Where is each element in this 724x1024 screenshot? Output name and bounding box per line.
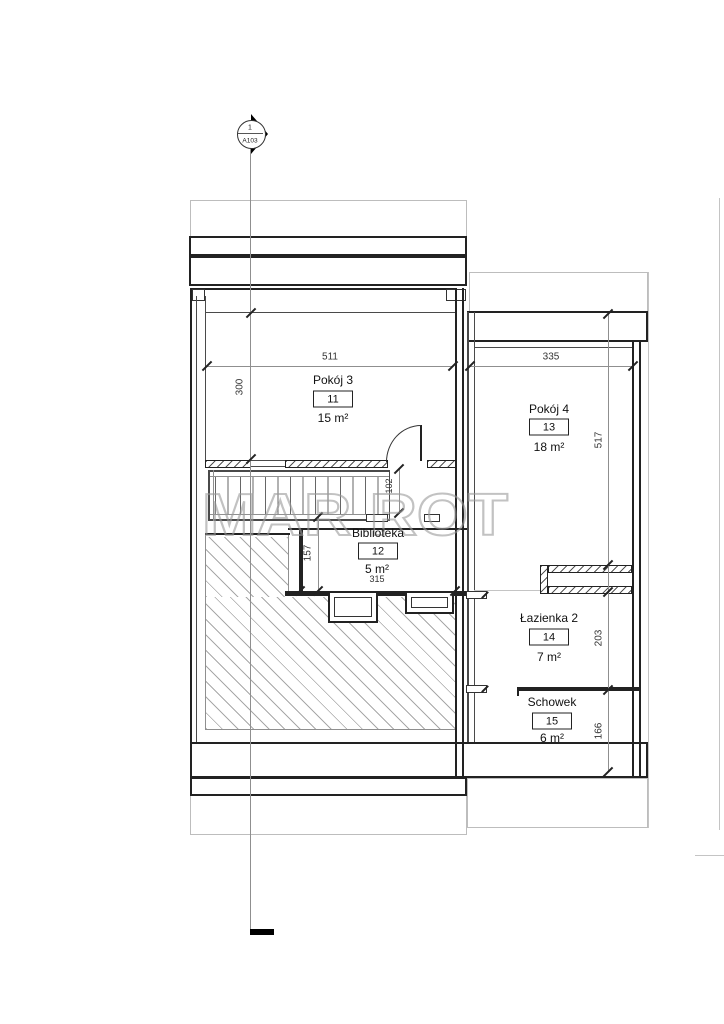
- room-name-lazienka2: Łazienka 2: [520, 611, 578, 625]
- underlay-bottom-edge: [695, 855, 724, 856]
- biblioteka-bottom-wall-1: [285, 591, 328, 596]
- dim-tick: [246, 454, 257, 465]
- roof-band-top-1: [189, 236, 467, 256]
- dim-label-300: 300: [235, 379, 246, 396]
- underlay-top-wing: [469, 272, 648, 312]
- corridor-opening-bottom: [251, 466, 285, 467]
- wall-left-face-upper: [205, 296, 206, 463]
- pillar-top-left: [192, 289, 205, 301]
- underlay-bottom-main: [190, 795, 467, 835]
- roof-band-bottom-1: [190, 742, 648, 778]
- schowek-divider-wall: [517, 687, 639, 691]
- corridor-opening-top: [251, 460, 285, 461]
- dim-label-517: 517: [594, 432, 605, 449]
- room-number-pokoj4: 13: [529, 419, 569, 436]
- room-name-schowek: Schowek: [528, 695, 577, 709]
- section-sheet-number: A103: [242, 138, 257, 145]
- dim-label-511: 511: [322, 352, 338, 363]
- underlay-top-main: [190, 200, 467, 237]
- dim-line-right-vertical: [608, 314, 609, 772]
- wall-left-face-lower: [205, 535, 206, 730]
- roof-band-wing: [467, 311, 648, 342]
- knee-wall-line-pokoj3: [205, 312, 455, 313]
- duct-wall-cap: [540, 565, 548, 594]
- chimney-block-1-inner: [334, 597, 372, 617]
- underlay-right-edge: [719, 198, 720, 830]
- room-name-pokoj3: Pokój 3: [313, 373, 353, 387]
- section-detail-number: 1: [248, 125, 252, 132]
- wing-wall-right-a: [632, 342, 634, 778]
- corridor-wall-seg-3: [427, 460, 456, 468]
- room-number-schowek: 15: [532, 713, 572, 730]
- corridor-wall-seg-1: [205, 460, 251, 468]
- section-marker-divider: [238, 133, 263, 134]
- dim-label-203: 203: [594, 630, 605, 647]
- dim-tick: [246, 308, 257, 319]
- duct-wall-band-2: [548, 586, 632, 594]
- room-number-pokoj3: 11: [313, 391, 353, 408]
- room-number-biblioteka: 12: [358, 543, 398, 560]
- door-swing-arc: [386, 425, 421, 462]
- wing-edge-gray: [648, 272, 649, 828]
- room-area-lazienka2: 7 m²: [537, 650, 561, 664]
- dim-label-335: 335: [543, 352, 560, 363]
- chimney-block-2: [405, 591, 454, 614]
- room-number-lazienka2: 14: [529, 629, 569, 646]
- roof-band-bottom-2: [190, 777, 467, 796]
- room-area-pokoj4: 18 m²: [534, 440, 565, 454]
- room-area-pokoj3: 15 m²: [318, 411, 349, 425]
- schowek-divider-cap: [517, 687, 519, 696]
- room-name-biblioteka: Biblioteka: [352, 526, 404, 540]
- dim-line-511: [207, 366, 453, 367]
- underlay-bottom-wing: [467, 778, 648, 828]
- wall-left-inner: [196, 296, 197, 742]
- chimney-block-1: [328, 591, 378, 623]
- floor-plan-canvas: 511 335 300 517 102 157 315 203 166 MAR …: [0, 0, 724, 1024]
- section-line-end-bar: [250, 929, 274, 935]
- dim-label-102: 102: [384, 478, 394, 493]
- stair-top-line-a: [208, 470, 390, 472]
- roof-band-top-2: [189, 256, 467, 286]
- dim-label-166: 166: [594, 723, 605, 740]
- wing-wall-right-b: [639, 342, 641, 778]
- duct-wall-band-1: [548, 565, 632, 573]
- room-area-schowek: 6 m²: [540, 731, 564, 745]
- dim-label-157: 157: [303, 545, 314, 562]
- wall-top-main: [190, 288, 457, 290]
- void-bottom-line: [205, 729, 455, 730]
- room-area-biblioteka: 5 m²: [365, 562, 389, 576]
- wall-left-outer: [190, 290, 192, 778]
- chimney-block-2-inner: [411, 597, 448, 608]
- corridor-wall-seg-2: [285, 460, 388, 468]
- room-name-pokoj4: Pokój 4: [529, 402, 569, 416]
